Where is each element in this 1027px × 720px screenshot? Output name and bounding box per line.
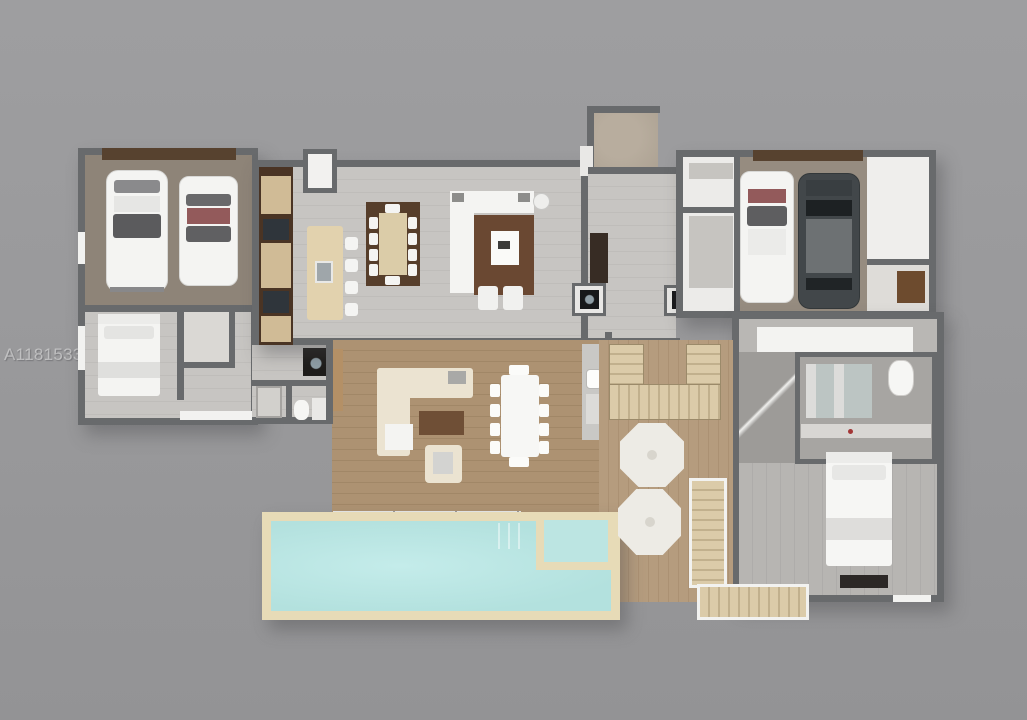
coffee-table-decor	[498, 241, 510, 249]
pantry-closet	[303, 149, 337, 193]
white-chair	[490, 441, 500, 454]
dining-chair	[385, 204, 400, 213]
island-stool	[345, 259, 358, 272]
pool-steps	[498, 523, 528, 549]
suv-windshield	[113, 214, 161, 238]
dining-chair	[408, 233, 417, 245]
umbrella-pole	[647, 450, 657, 460]
guest-bed-headboard	[98, 314, 160, 324]
storage-bench	[689, 163, 733, 179]
dark-suv-windshield	[806, 200, 852, 216]
dining-chair	[408, 217, 417, 229]
window-bottom-leftwing	[180, 411, 256, 420]
primary-bed-fold	[826, 518, 892, 540]
family-dining-table	[501, 375, 539, 457]
bath-counter	[757, 327, 913, 354]
sedan-windshield	[186, 226, 231, 242]
dining-chair	[385, 276, 400, 285]
entry-stone-landing	[594, 113, 658, 172]
primary-shower	[739, 352, 795, 463]
right-garage-door	[753, 150, 863, 161]
guest-bath-wall-v	[286, 380, 292, 424]
guest-closet	[184, 312, 235, 364]
kitchen-counter-3	[261, 316, 291, 342]
vanity-counter	[801, 424, 931, 438]
sedan-red-roof	[187, 208, 230, 224]
sofa-pillow	[452, 193, 464, 202]
dining-table	[379, 213, 407, 275]
family-rug	[419, 411, 464, 435]
guest-shower	[256, 386, 282, 418]
white-chair	[509, 365, 529, 375]
storage-bench	[689, 216, 733, 288]
living-sofa-side	[450, 191, 474, 293]
left-garage-door	[102, 148, 236, 160]
suv-grille	[110, 287, 164, 292]
sedan-rear-window	[186, 194, 231, 206]
cooktop	[263, 219, 289, 240]
island-stool	[345, 303, 358, 316]
kitchen-sink-appliance	[263, 291, 289, 313]
dining-chair	[369, 233, 378, 245]
ottoman	[503, 286, 523, 310]
white-chair	[490, 404, 500, 417]
hall-console	[590, 233, 608, 283]
hall-wall-top	[588, 167, 680, 174]
white-chair	[539, 384, 549, 397]
sofa-pillow	[448, 371, 466, 384]
storage-room-right	[867, 157, 929, 261]
dining-chair	[408, 249, 417, 261]
vanity-accent	[848, 429, 853, 434]
family-room-floor	[332, 340, 604, 518]
car-right-roof	[748, 229, 786, 255]
dining-chair	[408, 264, 417, 276]
car-right-sunroof	[748, 189, 786, 203]
dining-chair	[369, 249, 378, 261]
guest-toilet	[294, 400, 309, 420]
white-chair	[509, 457, 529, 467]
primary-bed-headboard	[826, 452, 892, 463]
guest-closet-wall-b	[184, 362, 235, 368]
armchair-throw	[433, 452, 453, 474]
guest-bed-pillows	[104, 326, 154, 339]
wood-shelf	[897, 271, 925, 303]
window-left-1	[78, 232, 85, 264]
island-stool	[345, 281, 358, 294]
ottoman	[478, 286, 498, 310]
side-table	[533, 193, 550, 210]
exterior-stair-vertical	[689, 478, 727, 588]
window-left-2	[78, 326, 85, 370]
storage-divider	[683, 207, 740, 213]
primary-toilet	[888, 360, 914, 396]
media-console	[840, 575, 888, 588]
suv-rear-window	[114, 180, 160, 193]
car-right-windshield	[747, 206, 787, 226]
dark-suv-roof	[806, 219, 852, 273]
guest-bedroom-wall	[177, 312, 184, 400]
white-chair	[539, 423, 549, 436]
guest-bed-fold	[98, 362, 160, 378]
kitchen-counter-2	[261, 243, 291, 288]
left-garage-wall	[85, 305, 252, 312]
side-table	[385, 424, 413, 450]
u-stair-landing	[609, 384, 721, 420]
vanity-pillar	[806, 364, 816, 418]
primary-bed-pillows	[832, 465, 886, 480]
floor-plan-rendering: A11815330 © Miami MLS® 2025	[0, 0, 1027, 720]
appliance-unit	[580, 290, 599, 309]
island-sink	[315, 261, 333, 283]
entry-wall-top	[587, 106, 660, 113]
dark-suv-rear-window	[806, 278, 852, 290]
umbrella-pole	[645, 517, 655, 527]
dark-suv-hood	[806, 180, 852, 196]
vanity-pillar	[834, 364, 844, 418]
open-door-panel	[333, 349, 343, 411]
spa	[536, 512, 616, 570]
white-chair	[490, 423, 500, 436]
sofa-pillow	[518, 193, 530, 202]
family-wall-left	[326, 340, 333, 424]
dining-chair	[369, 264, 378, 276]
suv-roof	[114, 196, 160, 212]
white-chair	[539, 441, 549, 454]
dining-chair	[369, 217, 378, 229]
guest-closet-wall-r	[229, 312, 235, 368]
exterior-stair-horizontal	[697, 584, 809, 620]
white-chair	[539, 404, 549, 417]
window-suite-2	[893, 595, 931, 602]
island-stool	[345, 237, 358, 250]
white-chair	[490, 384, 500, 397]
kitchen-counter-1	[261, 176, 291, 214]
